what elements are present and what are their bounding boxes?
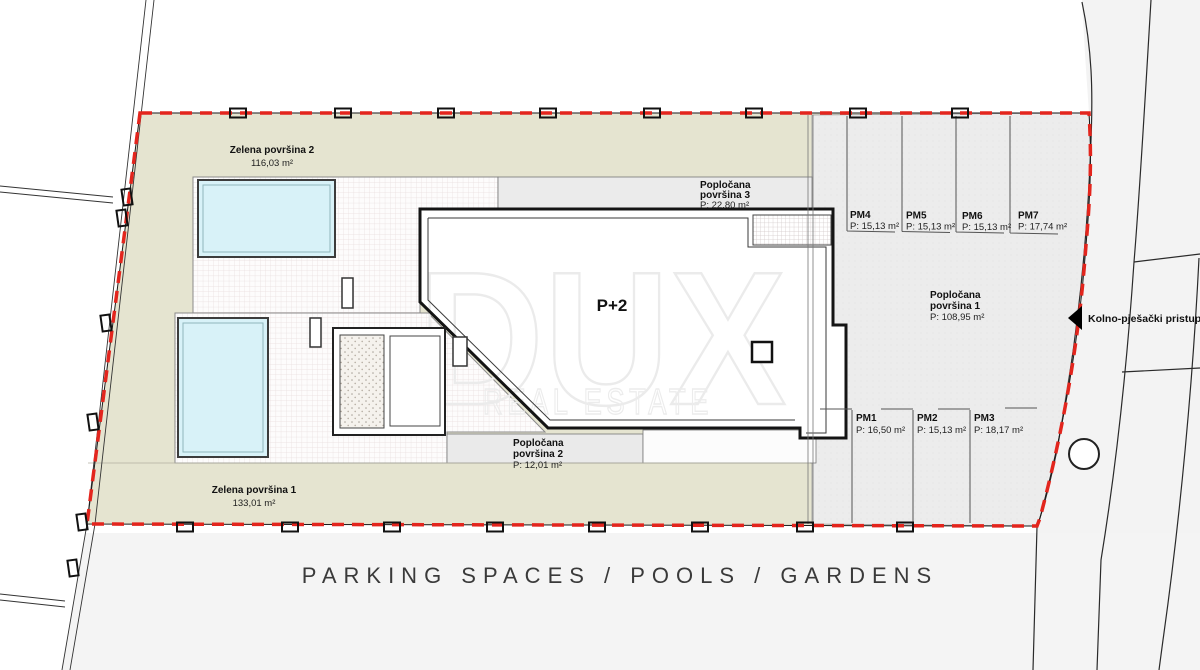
parking-space-pm7-id: PM7 [1018, 211, 1039, 222]
watermark-subtitle: REAL ESTATE [483, 381, 713, 422]
site-plan-drawing: DUX REAL ESTATE P+2 [0, 0, 1200, 670]
poplocana2-area: P: 12,01 m² [513, 460, 562, 471]
zelena2-name: Zelena površina 2 [230, 145, 315, 156]
gravel-bed [340, 335, 384, 428]
watermark: DUX REAL ESTATE [418, 233, 786, 445]
parking-space-pm7-area: P: 17,74 m² [1018, 222, 1067, 233]
roof-terrace-hatch [753, 215, 831, 245]
parking-space-pm6-id: PM6 [962, 211, 983, 222]
pillar-detail-1 [310, 318, 321, 347]
parking-space-pm2-id: PM2 [917, 413, 938, 424]
zelena1-area: 133,01 m² [233, 498, 276, 509]
parking-space-pm2-area: P: 15,13 m² [917, 425, 966, 436]
parking-space-pm4-id: PM4 [850, 210, 871, 221]
building-label: P+2 [597, 296, 628, 315]
parking-space-pm1-area: P: 16,50 m² [856, 425, 905, 436]
poplocana1-name2: površina 1 [930, 301, 980, 312]
site-plan-page: DUX REAL ESTATE P+2 [0, 0, 1200, 670]
rooflight [752, 342, 772, 362]
manhole-circle [1069, 439, 1099, 469]
paved-area-3 [498, 177, 812, 209]
pillar-detail-3 [453, 337, 467, 366]
zelena1-name: Zelena površina 1 [212, 485, 297, 496]
poplocana3-area: P: 22,80 m² [700, 200, 749, 211]
poplocana1-area: P: 108,95 m² [930, 312, 984, 323]
patio-inner [390, 336, 440, 426]
parking-space-pm3-area: P: 18,17 m² [974, 425, 1023, 436]
poplocana2-name1: Popločana [513, 438, 564, 449]
parking-space-pm4-area: P: 15,13 m² [850, 221, 899, 232]
access-label: Kolno-pješački pristup [1088, 313, 1200, 325]
poplocana1-name1: Popločana [930, 290, 981, 301]
pool-2 [178, 318, 268, 457]
area-below-plot [61, 533, 1200, 670]
parking-space-pm3-id: PM3 [974, 413, 995, 424]
parking-space-pm6-area: P: 15,13 m² [962, 222, 1011, 233]
pillar-detail-2 [342, 278, 353, 308]
poplocana2-name2: površina 2 [513, 449, 563, 460]
parking-space-pm5-id: PM5 [906, 211, 927, 222]
zelena2-area: 116,03 m² [251, 158, 293, 169]
pool-1 [198, 180, 335, 257]
parking-space-pm1-id: PM1 [856, 413, 877, 424]
page-title: PARKING SPACES / POOLS / GARDENS [302, 563, 938, 588]
parking-space-pm5-area: P: 15,13 m² [906, 222, 955, 233]
